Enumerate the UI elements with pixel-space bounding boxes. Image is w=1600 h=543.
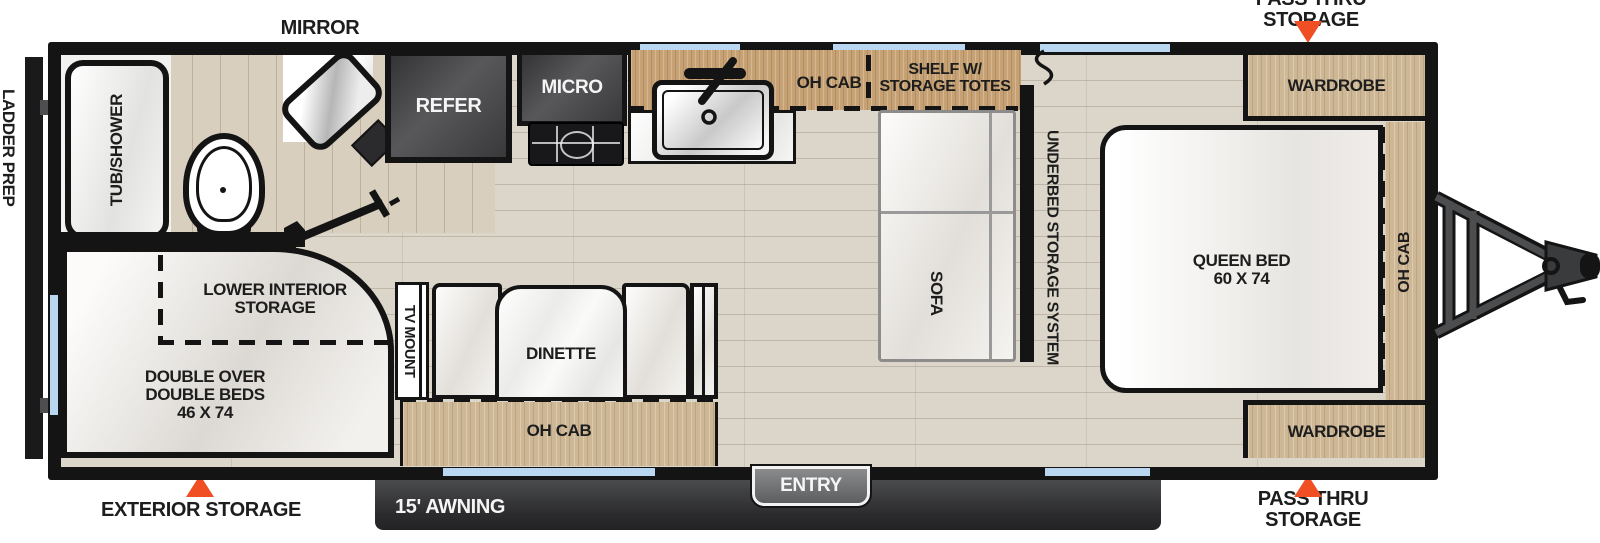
floorplan-canvas: MIRROR PASS THRU STORAGE EXTERIOR STORAG… (0, 0, 1600, 543)
fixtures-overlay (0, 0, 1600, 543)
faucet-icon (684, 61, 746, 123)
wall-break-squiggle-icon (1037, 51, 1052, 84)
trailer-hitch (1436, 197, 1600, 333)
bathroom-door (284, 191, 399, 247)
